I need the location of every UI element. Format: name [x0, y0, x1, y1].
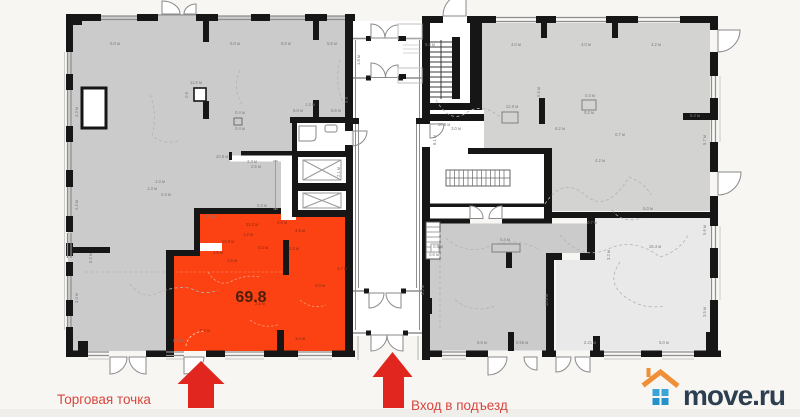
svg-text:move.ru: move.ru — [683, 380, 785, 411]
svg-text:3.4 м: 3.4 м — [74, 293, 79, 303]
svg-text:10.9 м: 10.9 м — [544, 294, 549, 306]
svg-text:5.7 м: 5.7 м — [702, 135, 707, 145]
svg-text:0.6 м: 0.6 м — [429, 252, 439, 257]
svg-text:0.3 м: 0.3 м — [257, 203, 267, 208]
svg-text:8.1 м: 8.1 м — [432, 135, 437, 145]
svg-text:0.9: 0.9 — [344, 96, 349, 102]
svg-text:5.4 м: 5.4 м — [690, 113, 700, 118]
svg-text:6.0 м: 6.0 м — [230, 41, 240, 46]
svg-text:5.4 м: 5.4 м — [500, 237, 510, 242]
svg-text:0.3 м: 0.3 м — [258, 245, 268, 250]
svg-text:1.5 м: 1.5 м — [213, 250, 223, 255]
svg-text:4.3 м: 4.3 м — [74, 107, 79, 117]
svg-text:10.8 м: 10.8 м — [216, 154, 228, 159]
svg-text:0.55 м: 0.55 м — [516, 340, 528, 345]
svg-text:0.7 м: 0.7 м — [615, 132, 625, 137]
svg-text:2.2 м: 2.2 м — [289, 246, 299, 251]
svg-text:3.2 м: 3.2 м — [420, 285, 425, 295]
svg-text:0.6 м: 0.6 м — [277, 220, 287, 225]
svg-text:5.4 м: 5.4 м — [425, 42, 435, 47]
svg-text:22.0 м: 22.0 м — [246, 222, 258, 227]
svg-text:5.0 м: 5.0 м — [293, 108, 303, 113]
svg-text:5.6 м: 5.6 м — [327, 41, 337, 46]
svg-text:0.4 м: 0.4 м — [235, 110, 245, 115]
svg-text:5.6 м: 5.6 м — [702, 225, 707, 235]
svg-text:6.0 м: 6.0 м — [110, 41, 120, 46]
svg-text:1.8 м: 1.8 м — [356, 55, 361, 65]
svg-text:1.0 м: 1.0 м — [155, 179, 165, 184]
svg-text:5.0 м: 5.0 м — [643, 206, 653, 211]
svg-text:5.7 м: 5.7 м — [205, 214, 215, 219]
svg-text:6.2 м: 6.2 м — [555, 126, 565, 131]
svg-text:0.6: 0.6 — [184, 91, 189, 97]
svg-text:2.21 м: 2.21 м — [584, 340, 596, 345]
svg-text:6.2 м: 6.2 м — [173, 338, 183, 343]
svg-text:3.2 м: 3.2 м — [606, 250, 611, 260]
svg-text:0.7 м: 0.7 м — [587, 220, 597, 225]
svg-text:0.4 м: 0.4 м — [585, 93, 595, 98]
svg-text:1.2 м: 1.2 м — [243, 232, 253, 237]
svg-text:11.5 м: 11.5 м — [190, 80, 202, 85]
svg-text:5.6 м: 5.6 м — [331, 108, 341, 113]
svg-text:1.3 м: 1.3 м — [305, 102, 315, 107]
svg-text:0.5 м: 0.5 м — [433, 244, 443, 249]
svg-text:2.5 м: 2.5 м — [251, 164, 261, 169]
svg-text:Торговая точка: Торговая точка — [57, 392, 151, 407]
svg-text:Вход в подъезд: Вход в подъезд — [411, 398, 508, 413]
svg-text:3.0 м: 3.0 м — [451, 126, 461, 131]
svg-text:6.0 м: 6.0 м — [281, 41, 291, 46]
svg-text:3.4 м: 3.4 м — [295, 336, 305, 341]
svg-text:0.4 м: 0.4 м — [161, 192, 171, 197]
svg-text:2.1 м: 2.1 м — [255, 301, 265, 306]
svg-text:4.2 м: 4.2 м — [595, 158, 605, 163]
svg-text:10.8 м: 10.8 м — [222, 239, 234, 244]
svg-text:4.0 м: 4.0 м — [511, 42, 521, 47]
svg-text:4.6 м: 4.6 м — [295, 228, 305, 233]
svg-text:12.0 м: 12.0 м — [506, 104, 518, 109]
svg-text:1.3 м: 1.3 м — [147, 186, 157, 191]
svg-text:4.3 м: 4.3 м — [74, 200, 79, 210]
svg-text:4.0 м: 4.0 м — [581, 42, 591, 47]
svg-text:15.4 м: 15.4 м — [649, 244, 661, 249]
svg-text:10.8 м: 10.8 м — [438, 122, 450, 127]
svg-text:4.7 м: 4.7 м — [337, 266, 347, 271]
svg-text:0.2 м: 0.2 м — [200, 328, 210, 333]
svg-text:1.6 м: 1.6 м — [227, 258, 237, 263]
svg-text:6.5 м: 6.5 м — [477, 340, 487, 345]
svg-text:5.0 м: 5.0 м — [659, 340, 669, 345]
svg-text:2.1 м: 2.1 м — [336, 167, 341, 177]
svg-text:4.2 м: 4.2 м — [651, 42, 661, 47]
svg-text:6.2 м: 6.2 м — [88, 253, 93, 263]
svg-text:3.0 м: 3.0 м — [315, 283, 325, 288]
svg-text:0.2 м: 0.2 м — [584, 110, 594, 115]
svg-text:0.5 м: 0.5 м — [536, 87, 541, 97]
svg-text:3.5 м: 3.5 м — [702, 307, 707, 317]
svg-text:0.4 м: 0.4 м — [235, 126, 245, 131]
